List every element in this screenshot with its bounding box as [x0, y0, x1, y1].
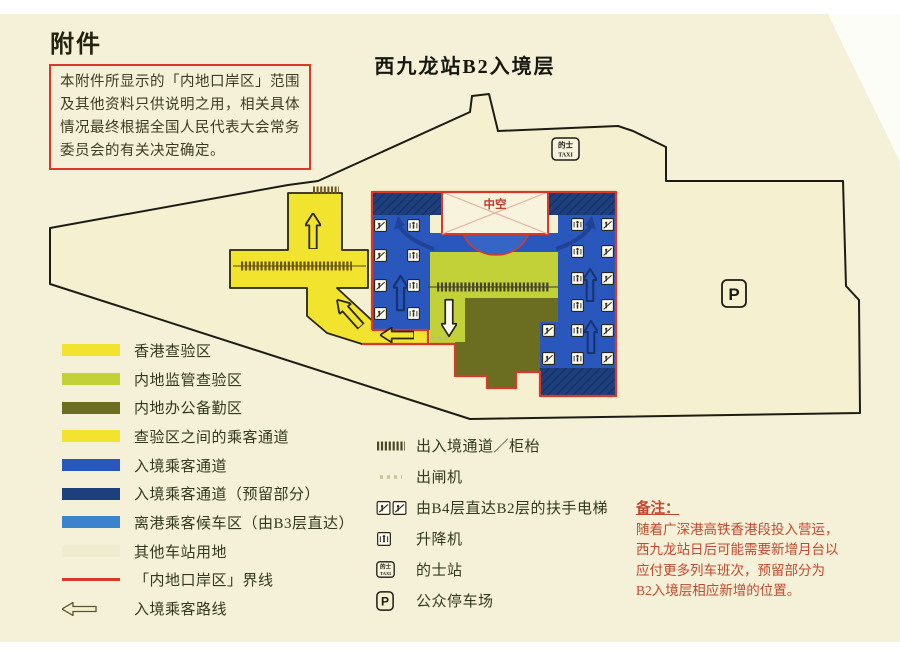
disclaimer-box: 本附件所显示的「内地口岸区」范围及其他资料只供说明之用，相关具体情况最终根据全国…	[49, 64, 311, 170]
lift-icon	[572, 300, 584, 312]
legend-label: 查验区之间的乘客通道	[134, 426, 289, 447]
lift-icon	[572, 246, 584, 258]
escalator-pair-icon	[376, 500, 416, 516]
legend-label: 公众停车场	[416, 590, 494, 611]
exit-gate-icon	[376, 471, 416, 483]
legend-label: 内地监管查验区	[134, 369, 243, 390]
note-title: 备注：	[636, 497, 882, 518]
legend-item-arrival-route: 入境乘客路线	[62, 594, 354, 623]
color-swatch	[62, 488, 120, 500]
lift-icon	[408, 250, 420, 262]
icon-legend: 出入境通道／柜枱 出闸机 由B4层直达B2层的扶手电梯 升降机 的士 TAXI	[376, 430, 608, 616]
void-label: 中空	[484, 197, 507, 211]
color-swatch	[62, 402, 120, 414]
lift-icon	[376, 531, 416, 547]
lift-icon	[572, 353, 584, 365]
legend-label: 内地办公备勤区	[134, 397, 243, 418]
legend-item-departure-waiting-area: 离港乘客候车区（由B3层直达）	[62, 508, 354, 537]
page-title: 西九龙站B2入境层	[330, 50, 600, 79]
legend-item-mainland-office-area: 内地办公备勤区	[62, 393, 354, 422]
lift-icon	[408, 280, 420, 292]
svg-text:P: P	[381, 594, 389, 608]
boundary-line-swatch	[62, 578, 120, 581]
legend-label: 出入境通道／柜枱	[416, 435, 540, 456]
note-block: 备注： 随着广深港高铁香港段投入营运， 西九龙站日后可能需要新增月台以 应付更多…	[636, 497, 882, 601]
note-line: 西九龙站日后可能需要新增月台以	[636, 540, 882, 560]
svg-text:TAXI: TAXI	[558, 153, 573, 159]
legend-label: 入境乘客路线	[134, 598, 227, 619]
legend-item-counter-strip: 出入境通道／柜枱	[376, 430, 608, 461]
escalator-icon	[602, 353, 614, 365]
route-arrow-icon	[62, 602, 120, 616]
legend-label: 香港查验区	[134, 340, 212, 361]
note-line: B2入境层相应新增的位置。	[636, 581, 882, 601]
lift-icon	[572, 219, 584, 231]
legend-item-exit-gate: 出闸机	[376, 461, 608, 492]
svg-text:P: P	[728, 285, 739, 304]
escalator-icon	[375, 250, 387, 262]
taxi-icon: 的士 TAXI	[376, 561, 416, 578]
legend-label: 入境乘客通道	[134, 455, 227, 476]
svg-text:的士: 的士	[380, 563, 392, 571]
legend-item-escalator: 由B4层直达B2层的扶手电梯	[376, 492, 608, 523]
parking-icon: P	[722, 280, 746, 307]
escalator-icon	[375, 220, 387, 232]
legend-item-taxi: 的士 TAXI 的士站	[376, 554, 608, 585]
color-swatch	[62, 430, 120, 442]
svg-text:TAXI: TAXI	[380, 571, 391, 576]
lift-icon	[408, 308, 420, 320]
legend-item-lift: 升降机	[376, 523, 608, 554]
note-line: 随着广深港高铁香港段投入营运，	[636, 520, 882, 540]
note-line: 应付更多列车班次，预留部分为	[636, 561, 882, 581]
legend-item-hk-inspection-area: 香港查验区	[62, 336, 354, 365]
legend-label: 由B4层直达B2层的扶手电梯	[416, 497, 608, 518]
lift-icon	[572, 325, 584, 337]
legend-label: 离港乘客候车区（由B3层直达）	[134, 512, 354, 533]
attachment-label: 附件	[50, 24, 102, 59]
legend-label: 的士站	[416, 559, 463, 580]
void-atrium: 中空	[442, 192, 548, 234]
escalator-icon	[602, 273, 614, 285]
lift-icon	[408, 220, 420, 232]
counter-strip-icon	[376, 440, 416, 452]
area-legend: 香港查验区 内地监管查验区 内地办公备勤区 查验区之间的乘客通道 入境乘客通道 …	[62, 336, 354, 623]
color-swatch	[62, 373, 120, 385]
legend-label: 升降机	[416, 528, 463, 549]
legend-item-other-station-land: 其他车站用地	[62, 537, 354, 566]
color-swatch	[62, 344, 120, 356]
legend-label: 「内地口岸区」界线	[134, 569, 274, 590]
escalator-icon	[375, 280, 387, 292]
escalator-icon	[602, 219, 614, 231]
color-swatch	[62, 545, 120, 557]
escalator-icon	[543, 353, 555, 365]
legend-item-inter-area-channel: 查验区之间的乘客通道	[62, 422, 354, 451]
legend-label: 其他车站用地	[134, 541, 227, 562]
color-swatch	[62, 459, 120, 471]
escalator-icon	[602, 246, 614, 258]
legend-item-port-area-boundary: 「内地口岸区」界线	[62, 566, 354, 595]
escalator-icon	[375, 308, 387, 320]
taxi-stand-icon: 的士 TAXI	[552, 138, 579, 160]
legend-label: 出闸机	[416, 466, 463, 487]
legend-item-parking: P 公众停车场	[376, 585, 608, 616]
legend-item-arrival-channel-reserved: 入境乘客通道（预留部分）	[62, 479, 354, 508]
scanned-page: 中空	[0, 0, 900, 651]
reserved-band-bottom	[540, 368, 616, 396]
legend-label: 入境乘客通道（预留部分）	[134, 483, 320, 504]
legend-item-arrival-channel: 入境乘客通道	[62, 451, 354, 480]
svg-text:的士: 的士	[558, 140, 573, 150]
escalator-icon	[602, 300, 614, 312]
escalator-icon	[543, 325, 555, 337]
reserved-band-top-left	[372, 192, 442, 215]
legend-item-mainland-supervision-area: 内地监管查验区	[62, 365, 354, 394]
color-swatch	[62, 516, 120, 528]
parking-icon: P	[376, 591, 416, 611]
escalator-icon	[602, 325, 614, 337]
reserved-band-top-right	[548, 192, 616, 215]
lift-icon	[572, 273, 584, 285]
